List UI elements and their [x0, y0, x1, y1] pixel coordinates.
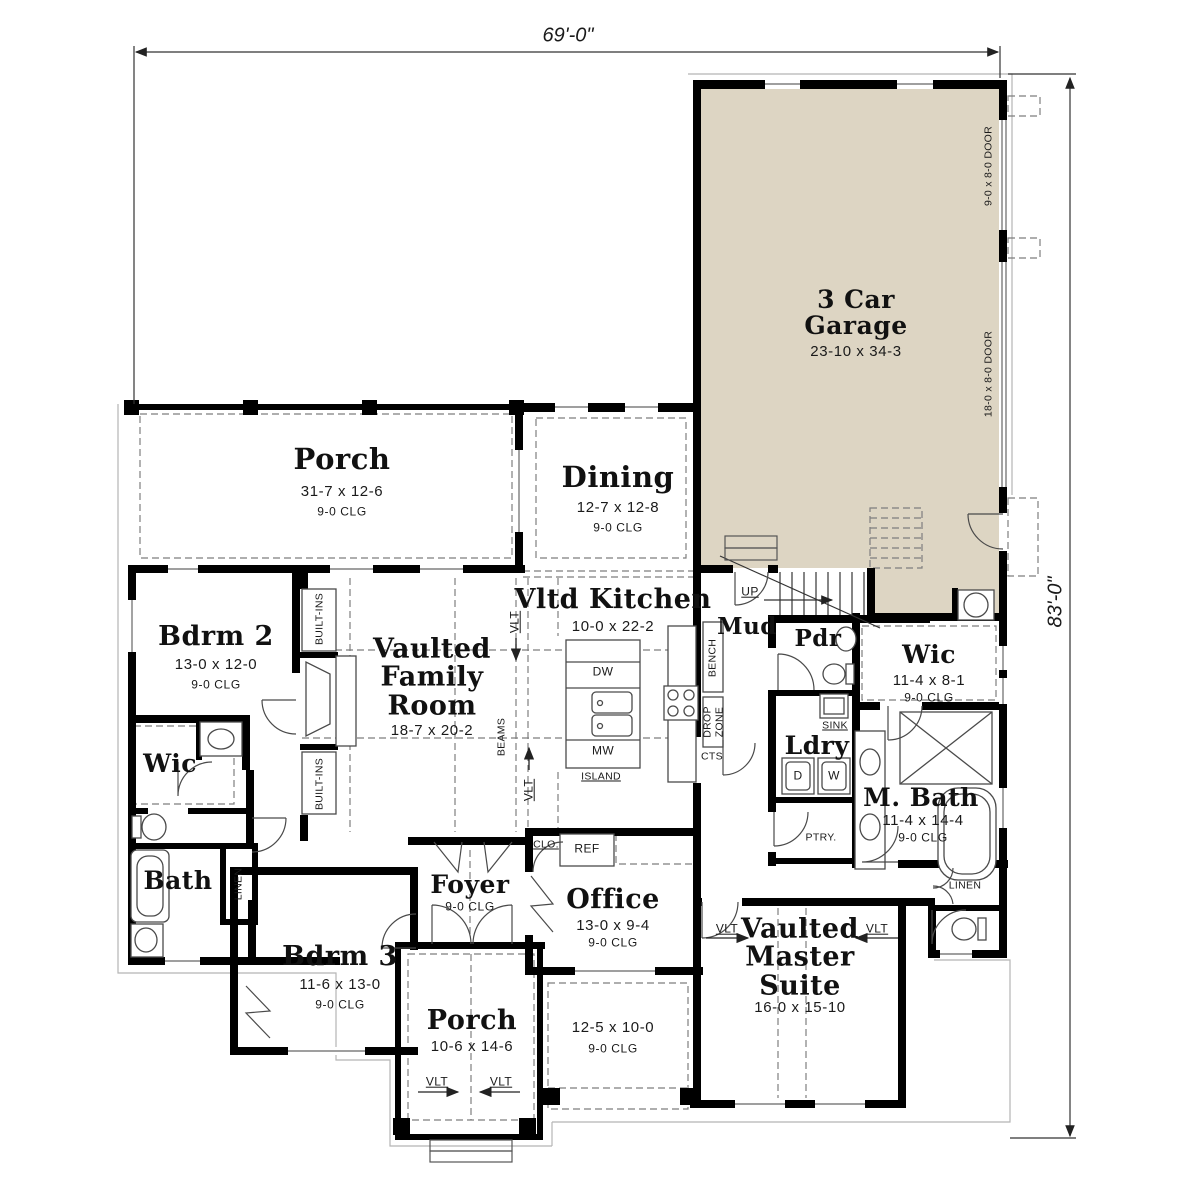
room-office-size: 13-0 x 9-4 — [576, 918, 650, 934]
vlt-porch-left: VLT — [426, 1076, 448, 1089]
washer-label: W — [828, 770, 840, 783]
island-label: ISLAND — [581, 771, 621, 782]
room-porch-front-size: 31-7 x 12-6 — [301, 484, 383, 500]
room-foyer: Foyer — [430, 872, 509, 898]
room-master-size: 16-0 x 15-10 — [754, 1000, 845, 1016]
room-mbath-size: 11-4 x 14-4 — [882, 813, 963, 829]
dryer-label: D — [793, 770, 802, 783]
dimension-height: 83'-0" — [1046, 577, 1067, 628]
room-porch-rear: Porch — [427, 1007, 517, 1035]
vlt-master-left: VLT — [716, 923, 738, 936]
room-dining: Dining — [562, 462, 675, 492]
beams-label: BEAMS — [496, 718, 507, 756]
room-dining-clg: 9-0 CLG — [593, 522, 643, 535]
room-foyer-clg: 9-0 CLG — [445, 901, 495, 914]
room-office-clg: 9-0 CLG — [588, 937, 638, 950]
vlt-kitchen-bottom: VLT — [523, 779, 536, 801]
room-ldry: Ldry — [785, 733, 850, 759]
bench-label: BENCH — [707, 639, 718, 677]
room-family-size: 18-7 x 20-2 — [391, 723, 473, 739]
room-bdrm2-clg: 9-0 CLG — [191, 679, 241, 692]
room-bdrm3-size: 11-6 x 13-0 — [299, 977, 380, 993]
garage-door-small-label: 9-0 x 8-0 DOOR — [983, 126, 994, 206]
drop-label: DROP — [702, 706, 713, 738]
built-ins-top-label: BUILT-INS — [314, 593, 325, 645]
linen-left-label: LINEN — [233, 868, 244, 900]
room-porch-front-clg: 9-0 CLG — [317, 506, 367, 519]
room-mud: Mud — [717, 615, 777, 639]
room-mbath-clg: 9-0 CLG — [898, 832, 948, 845]
pantry-label: PTRY. — [806, 832, 837, 843]
zone-label: ZONE — [714, 707, 725, 737]
room-family: Vaulted Family Room — [367, 635, 497, 720]
room-garage-size: 23-10 x 34-3 — [810, 344, 901, 360]
room-bdrm2: Bdrm 2 — [158, 623, 274, 651]
stairs-up-label: UP — [741, 586, 758, 599]
room-wic-right: Wic — [902, 642, 956, 668]
vlt-master-right: VLT — [866, 923, 888, 936]
cts-label: CTS — [701, 751, 723, 762]
room-garage: 3 Car Garage — [794, 287, 919, 340]
room-office: Office — [566, 886, 660, 914]
room-kitchen-size: 10-0 x 22-2 — [572, 619, 654, 635]
dimension-width: 69'-0" — [543, 26, 594, 47]
room-bdrm2-size: 13-0 x 12-0 — [175, 657, 257, 673]
room-dining-size: 12-7 x 12-8 — [577, 500, 659, 516]
room-mbath: M. Bath — [863, 785, 979, 811]
room-wic-right-size: 11-4 x 8-1 — [893, 673, 965, 689]
floor-plan: 69'-0" 83'-0" 3 Car Garage 23-10 x 34-3 … — [0, 0, 1200, 1195]
vlt-kitchen-top: VLT — [509, 611, 522, 633]
garage-door-large-label: 18-0 x 8-0 DOOR — [983, 331, 994, 417]
room-bdrm3-clg: 9-0 CLG — [315, 999, 365, 1012]
room-patio-size: 12-5 x 10-0 — [572, 1020, 654, 1036]
closet-label: CLO. — [533, 839, 559, 850]
linen-right-label: LINEN — [949, 880, 981, 891]
vlt-porch-right: VLT — [490, 1076, 512, 1089]
room-patio-clg: 9-0 CLG — [588, 1043, 638, 1056]
room-kitchen: Vltd Kitchen — [514, 586, 711, 614]
room-pdr: Pdr — [795, 627, 842, 651]
room-wic-right-clg: 9-0 CLG — [904, 692, 954, 705]
room-bath: Bath — [143, 868, 212, 894]
sink-label: SINK — [822, 720, 848, 731]
room-porch-front: Porch — [294, 444, 391, 474]
room-wic-left: Wic — [143, 751, 197, 777]
room-bdrm3: Bdrm 3 — [282, 943, 398, 971]
fridge-label: REF — [574, 843, 599, 856]
dishwasher-label: DW — [593, 666, 614, 679]
room-porch-rear-size: 10-6 x 14-6 — [431, 1039, 513, 1055]
built-ins-bottom-label: BUILT-INS — [314, 758, 325, 810]
microwave-label: MW — [592, 745, 614, 758]
room-master: Vaulted Master Suite — [735, 915, 865, 1000]
